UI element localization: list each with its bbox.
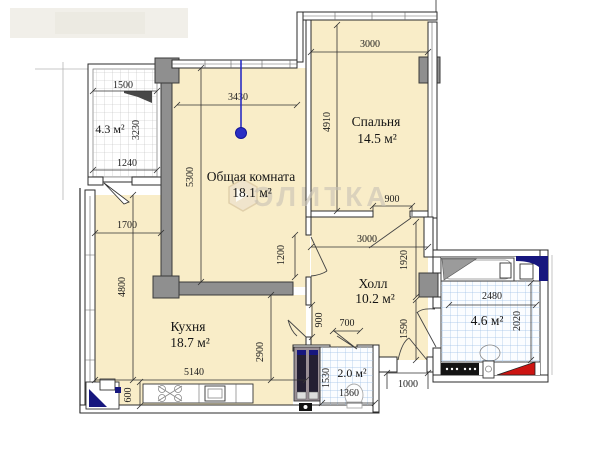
dim-wc-width: 1360 [339,388,359,399]
dim-kitchen-door: 900 [314,313,325,328]
floor-plan-page: ЭЛИТКА Общая комната 18.1 м² Спальня 14.… [0,0,600,450]
dim-kitchen-right: 2900 [255,342,266,362]
dim-wc-door: 700 [340,318,355,329]
watermark-text: ЭЛИТКА [253,181,390,212]
living-room-area: 18.1 м² [232,185,272,200]
dim-wc-depth: 1530 [321,368,332,388]
entry-jamb-right [427,357,433,372]
wall-living-left [161,83,172,276]
kitchen-name: Кухня [171,319,206,334]
dim-kitchen-width: 5140 [184,367,204,378]
floor-plan-canvas: ЭЛИТКА Общая комната 18.1 м² Спальня 14.… [0,0,600,450]
corner-cabinet [86,379,121,409]
dim-kitchen-depth: 4800 [117,277,128,297]
bath-wall-top [433,250,548,257]
dim-balcony-bottom: 1240 [117,158,137,169]
bottom-wall [80,405,379,413]
dim-bath-depth: 2020 [512,311,523,331]
sink-icon [205,386,225,401]
dim-counter: 600 [123,388,134,403]
dim-hall-width: 3000 [357,234,377,245]
dim-balcony-top: 1500 [113,80,133,91]
dim-kitchen-nook: 1700 [117,220,137,231]
hall-area: 10.2 м² [355,291,395,306]
entry-jamb-left [379,357,397,372]
dim-balcony-depth: 3230 [131,120,142,140]
dim-bath-width: 2480 [482,291,502,302]
kitchen-nook-floor [95,195,161,298]
wall-bedroom-hall-right [410,211,428,217]
living-room-name: Общая комната [207,169,295,184]
dim-living-door: 1200 [276,245,287,265]
hall-name: Холл [359,276,388,291]
dim-hall-upper: 1920 [399,250,410,270]
bathroom-area: 4.6 м² [471,313,504,328]
bedroom-window [428,22,437,218]
column-mid [153,276,179,298]
dim-bedroom-door: 900 [385,194,400,205]
column-bath [419,273,438,297]
wall-kitchen-living [179,282,293,295]
kitchen-area: 18.7 м² [170,335,210,350]
bedroom-area: 14.5 м² [357,131,397,146]
dim-bedroom-depth: 4910 [322,112,333,132]
dim-hall-lower: 1590 [399,319,410,339]
dim-living-width: 3430 [228,92,248,103]
balcony-area: 4.3 м² [95,122,125,136]
bedroom-name: Спальня [352,114,401,129]
wc-area: 2.0 м² [337,366,367,380]
dim-entry-door: 1000 [398,379,418,390]
dim-living-depth: 5300 [185,167,196,187]
wall-hall-right [424,217,433,257]
dim-bedroom-width: 3000 [360,39,380,50]
